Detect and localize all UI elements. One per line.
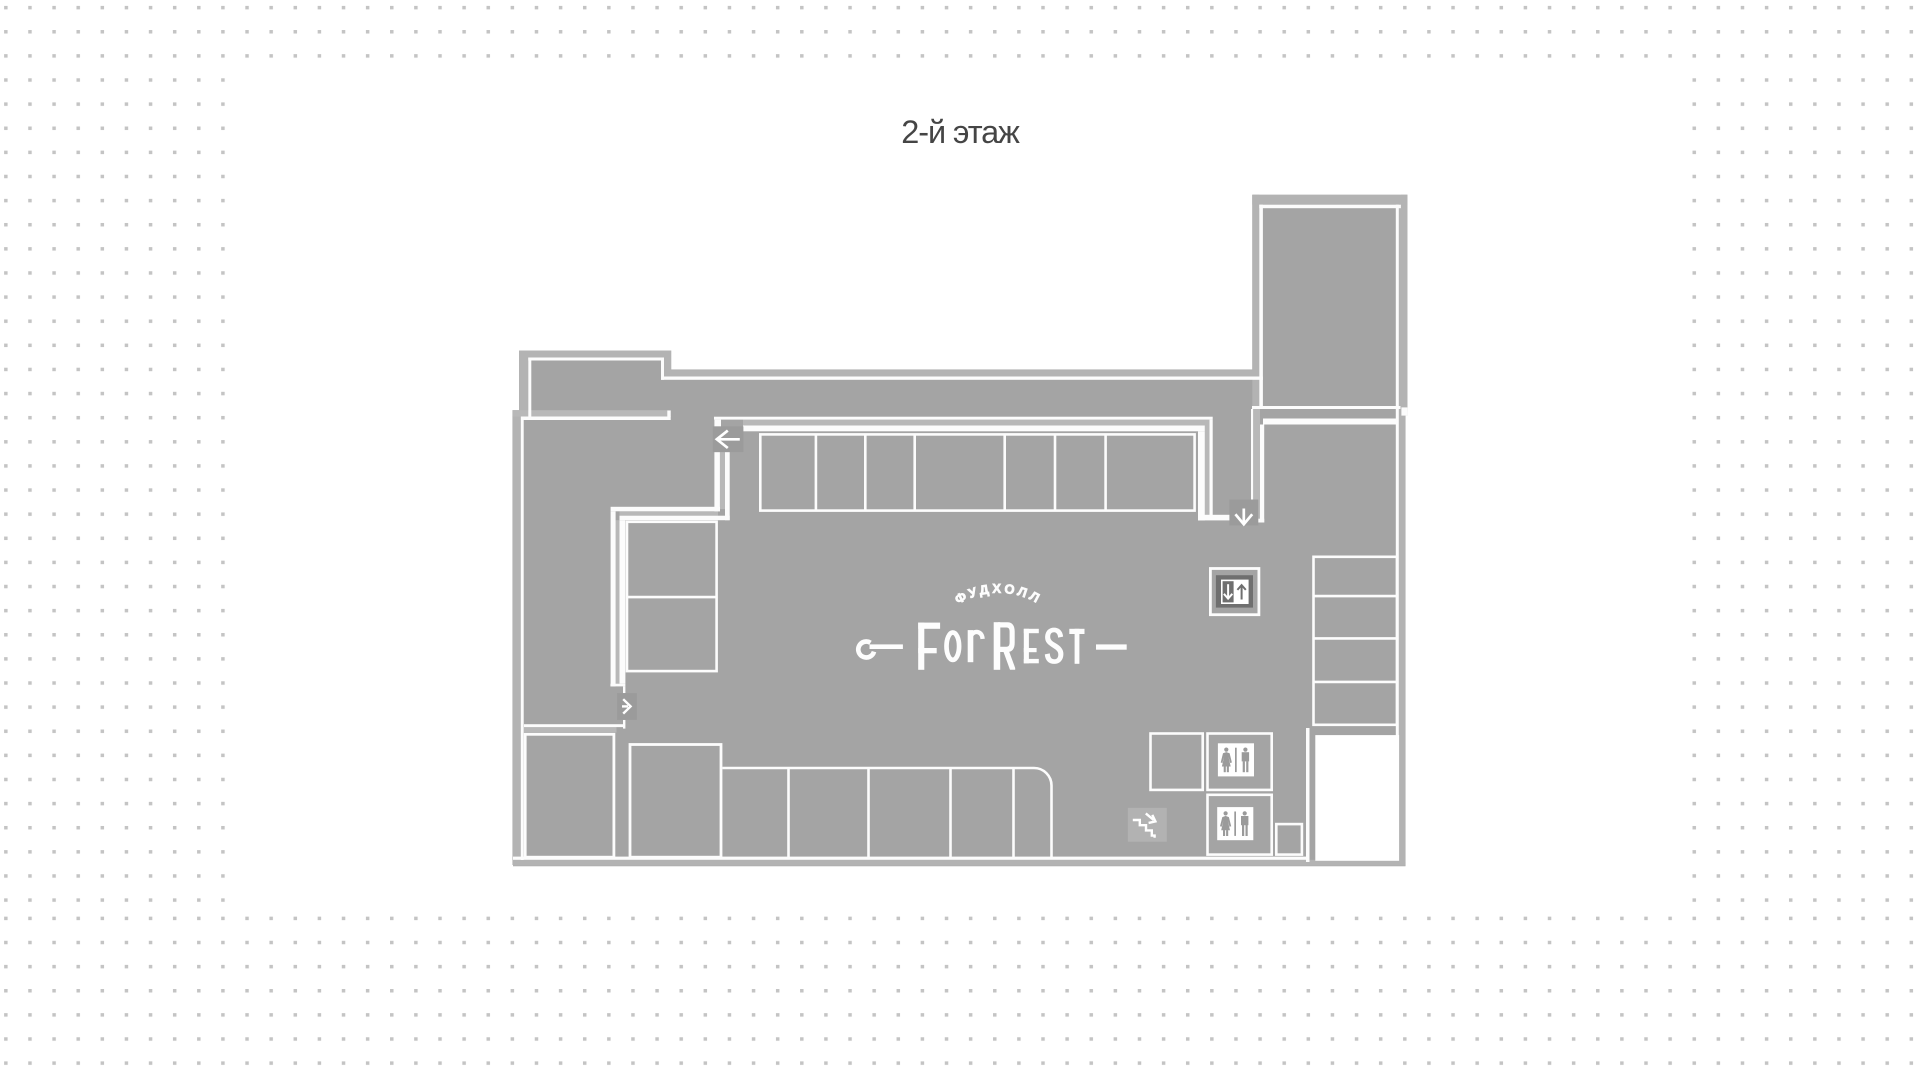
svg-text:2-й этаж: 2-й этаж: [901, 114, 1020, 150]
